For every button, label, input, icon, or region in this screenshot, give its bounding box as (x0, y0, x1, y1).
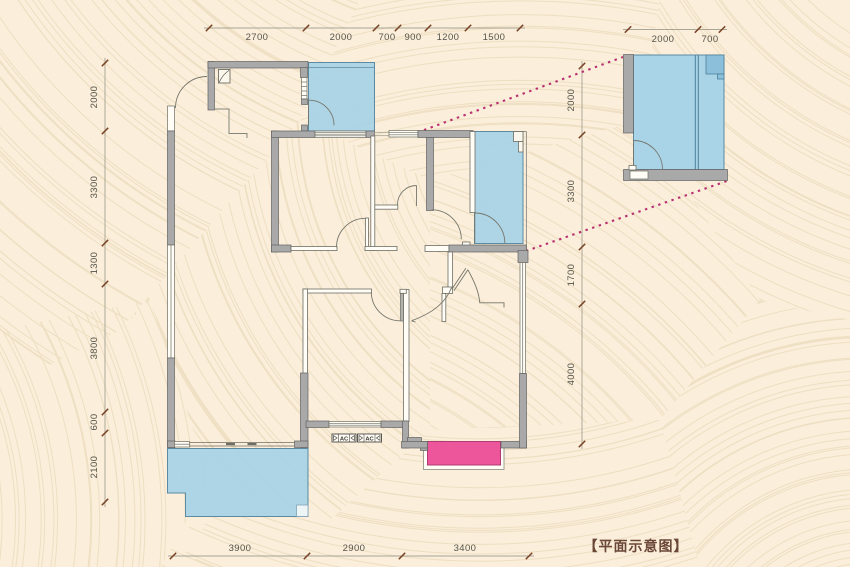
svg-text:1300: 1300 (89, 252, 100, 275)
svg-text:AC: AC (365, 436, 374, 442)
svg-text:2900: 2900 (343, 543, 366, 554)
svg-text:1700: 1700 (566, 264, 577, 287)
svg-text:【平面示意图】: 【平面示意图】 (584, 538, 689, 554)
svg-text:3800: 3800 (89, 337, 100, 360)
svg-text:2000: 2000 (89, 86, 100, 109)
svg-text:2000: 2000 (330, 32, 353, 43)
svg-text:2000: 2000 (652, 34, 675, 45)
svg-text:4000: 4000 (566, 363, 577, 386)
svg-text:3300: 3300 (566, 180, 577, 203)
svg-text:900: 900 (404, 32, 421, 43)
svg-text:AC: AC (340, 436, 349, 442)
svg-text:2000: 2000 (566, 89, 577, 112)
svg-text:1200: 1200 (437, 32, 460, 43)
svg-text:3300: 3300 (89, 176, 100, 199)
svg-text:600: 600 (89, 413, 100, 430)
svg-text:2700: 2700 (246, 32, 269, 43)
svg-text:3400: 3400 (454, 543, 477, 554)
svg-text:3900: 3900 (229, 543, 252, 554)
svg-text:700: 700 (378, 32, 395, 43)
svg-text:1500: 1500 (483, 32, 506, 43)
svg-text:2100: 2100 (89, 456, 100, 479)
svg-text:700: 700 (701, 34, 718, 45)
